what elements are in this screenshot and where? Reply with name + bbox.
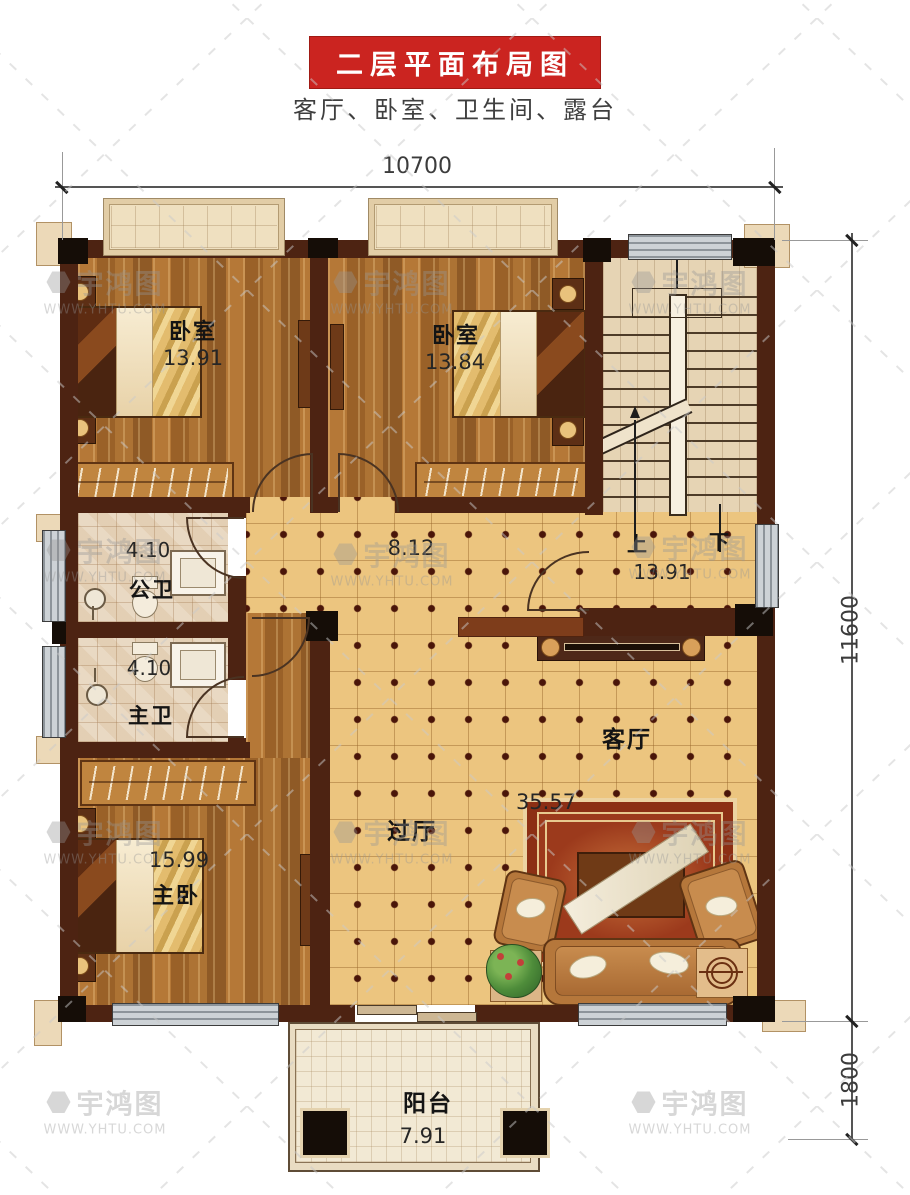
wall-stair-landing	[580, 608, 757, 636]
wall-bedroom2-stair	[585, 258, 603, 515]
dim-balcony-value: 1800	[839, 1052, 864, 1108]
room-bath-master-label: 主卫	[128, 700, 174, 730]
bath-master-shower-head	[86, 684, 108, 706]
wall-door-stub	[310, 497, 338, 513]
watermark-url: WWW.YHTU.COM	[628, 1123, 751, 1138]
half-wall-landing	[458, 617, 584, 637]
wall-bath-bottom	[60, 742, 250, 758]
terrace-right	[368, 198, 558, 256]
terrace-grid	[111, 206, 277, 248]
room-living-label: 客厅	[602, 720, 652, 754]
wall-under-bedroom1	[60, 497, 250, 513]
room-master-area: 15.99	[149, 848, 209, 872]
wall-master-right	[310, 613, 330, 1005]
balcony-column	[500, 1108, 550, 1158]
room-bedroom1-area: 13.91	[163, 346, 223, 370]
watermark-logo-icon	[631, 1091, 655, 1113]
shower-stem	[94, 668, 96, 682]
living-tv-cabinet	[537, 634, 705, 661]
wardrobe-pole	[424, 481, 579, 483]
column	[58, 996, 86, 1022]
wall-right	[757, 258, 775, 1022]
bed-sheet	[116, 308, 154, 416]
column	[733, 238, 775, 266]
column	[58, 238, 88, 264]
dim-extension	[774, 148, 775, 240]
room-balcony-area: 7.91	[400, 1124, 447, 1148]
tv-icon	[564, 643, 680, 651]
sink-basin	[180, 650, 216, 680]
wardrobe-pole	[75, 481, 226, 483]
wall-under-bedroom2	[395, 497, 603, 513]
bath-master-sink	[170, 642, 226, 688]
watermark-brand: 宇鸿图	[661, 1083, 748, 1122]
master-wardrobe	[80, 760, 256, 806]
round-ornament-inner	[711, 962, 733, 984]
stair-area: 13.91	[633, 560, 690, 584]
dim-right-value: 11600	[839, 595, 864, 665]
column	[733, 996, 775, 1022]
column	[306, 611, 338, 641]
watermark: 宇鸿图WWW.YHTU.COM	[628, 1083, 751, 1138]
potted-plant	[486, 944, 542, 998]
shower-stem	[92, 606, 94, 620]
room-bath-public-area: 4.10	[126, 538, 171, 562]
flower	[505, 973, 512, 980]
sliding-door-panel	[417, 1012, 477, 1022]
bath-public-shower-head	[84, 588, 106, 610]
watermark-brand: 宇鸿图	[76, 1083, 163, 1122]
dim-extension	[788, 1139, 868, 1140]
window-bath-master	[42, 646, 66, 738]
room-hallway-label: 过厅	[387, 812, 437, 846]
column	[583, 238, 611, 262]
bedroom2-nightstand-bottom	[552, 414, 584, 446]
room-bedroom2-area: 13.84	[425, 350, 485, 374]
bedroom2-nightstand-top	[552, 278, 584, 310]
room-bedroom2-label: 卧室	[432, 318, 480, 350]
ornament-cross	[699, 971, 743, 973]
dim-extension	[62, 152, 63, 240]
lamp-icon	[559, 421, 577, 439]
room-bath-master-area: 4.10	[127, 656, 172, 680]
stair-landing-line	[676, 258, 678, 288]
flower	[517, 959, 524, 966]
window-master-bottom	[112, 1003, 279, 1026]
wall-bath-divider	[60, 622, 246, 638]
stair-up-arrowhead-icon	[630, 406, 640, 418]
balcony-column	[300, 1108, 350, 1158]
lamp-icon	[559, 285, 577, 303]
room-bedroom1-label: 卧室	[169, 314, 217, 346]
page-title: 二层平面布局图	[309, 36, 601, 89]
stair-landing-outline	[632, 288, 722, 318]
sliding-door-panel	[357, 1005, 417, 1015]
column	[308, 238, 338, 258]
window-living-bottom	[578, 1003, 727, 1026]
window-bath-public	[42, 530, 66, 622]
window-stair-top	[628, 234, 732, 260]
watermark-logo-icon	[46, 1091, 70, 1113]
page-subtitle: 客厅、卧室、卫生间、露台	[293, 90, 617, 125]
floor-plan-page: 二层平面布局图 客厅、卧室、卫生间、露台	[0, 0, 910, 1195]
toilet-tank	[132, 642, 158, 655]
bed-sheet	[500, 312, 537, 416]
flower	[497, 953, 504, 960]
room-hallway-area: 8.12	[388, 536, 435, 560]
room-bath-public-label: 公卫	[129, 574, 175, 604]
ornament-side-table	[696, 948, 748, 998]
room-master-label: 主卧	[152, 878, 200, 910]
room-balcony-label: 阳台	[403, 1084, 453, 1118]
window-stair-right	[755, 524, 779, 608]
bedroom2-wardrobe	[415, 462, 587, 502]
column	[735, 604, 773, 636]
cabinet-lamp	[541, 638, 560, 657]
stair-up-label: 上	[627, 528, 649, 557]
wardrobe-pole	[89, 781, 247, 783]
dim-line-top	[55, 186, 783, 188]
watermark: 宇鸿图WWW.YHTU.COM	[43, 1083, 166, 1138]
terrace-grid	[376, 206, 550, 248]
room-living-area: 35.57	[516, 790, 576, 814]
stair-treads-right	[683, 296, 757, 512]
bedroom2-tv-console	[330, 324, 344, 410]
dim-top-value: 10700	[382, 154, 452, 179]
bed-pillows	[537, 312, 584, 416]
stair-down-label: 下	[709, 526, 731, 555]
watermark-url: WWW.YHTU.COM	[43, 1123, 166, 1138]
cabinet-lamp	[682, 638, 701, 657]
terrace-left	[103, 198, 285, 256]
